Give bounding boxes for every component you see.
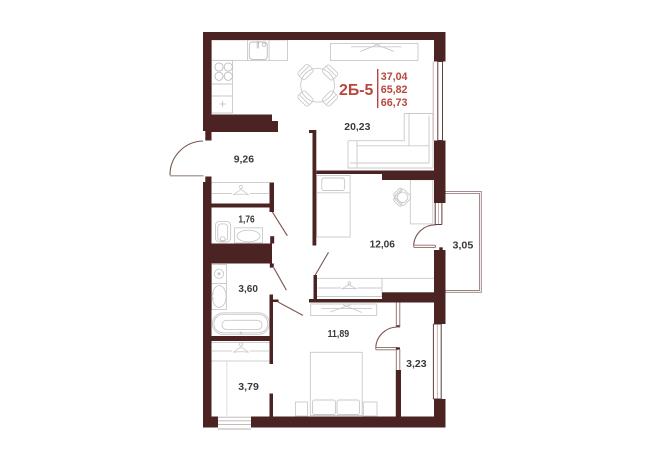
svg-text:12,06: 12,06 — [370, 239, 395, 251]
svg-text:65,82: 65,82 — [381, 84, 408, 96]
svg-text:1,76: 1,76 — [238, 213, 254, 225]
svg-text:3,60: 3,60 — [238, 283, 258, 295]
svg-text:20,23: 20,23 — [344, 121, 370, 133]
svg-text:9,26: 9,26 — [234, 154, 255, 166]
svg-text:3,23: 3,23 — [406, 358, 427, 370]
svg-text:3,05: 3,05 — [453, 239, 474, 251]
svg-text:66,73: 66,73 — [381, 97, 408, 109]
svg-text:2Б-5: 2Б-5 — [339, 82, 373, 99]
svg-text:11,89: 11,89 — [328, 328, 350, 340]
svg-text:3,79: 3,79 — [238, 381, 259, 393]
svg-text:37,04: 37,04 — [381, 71, 408, 83]
